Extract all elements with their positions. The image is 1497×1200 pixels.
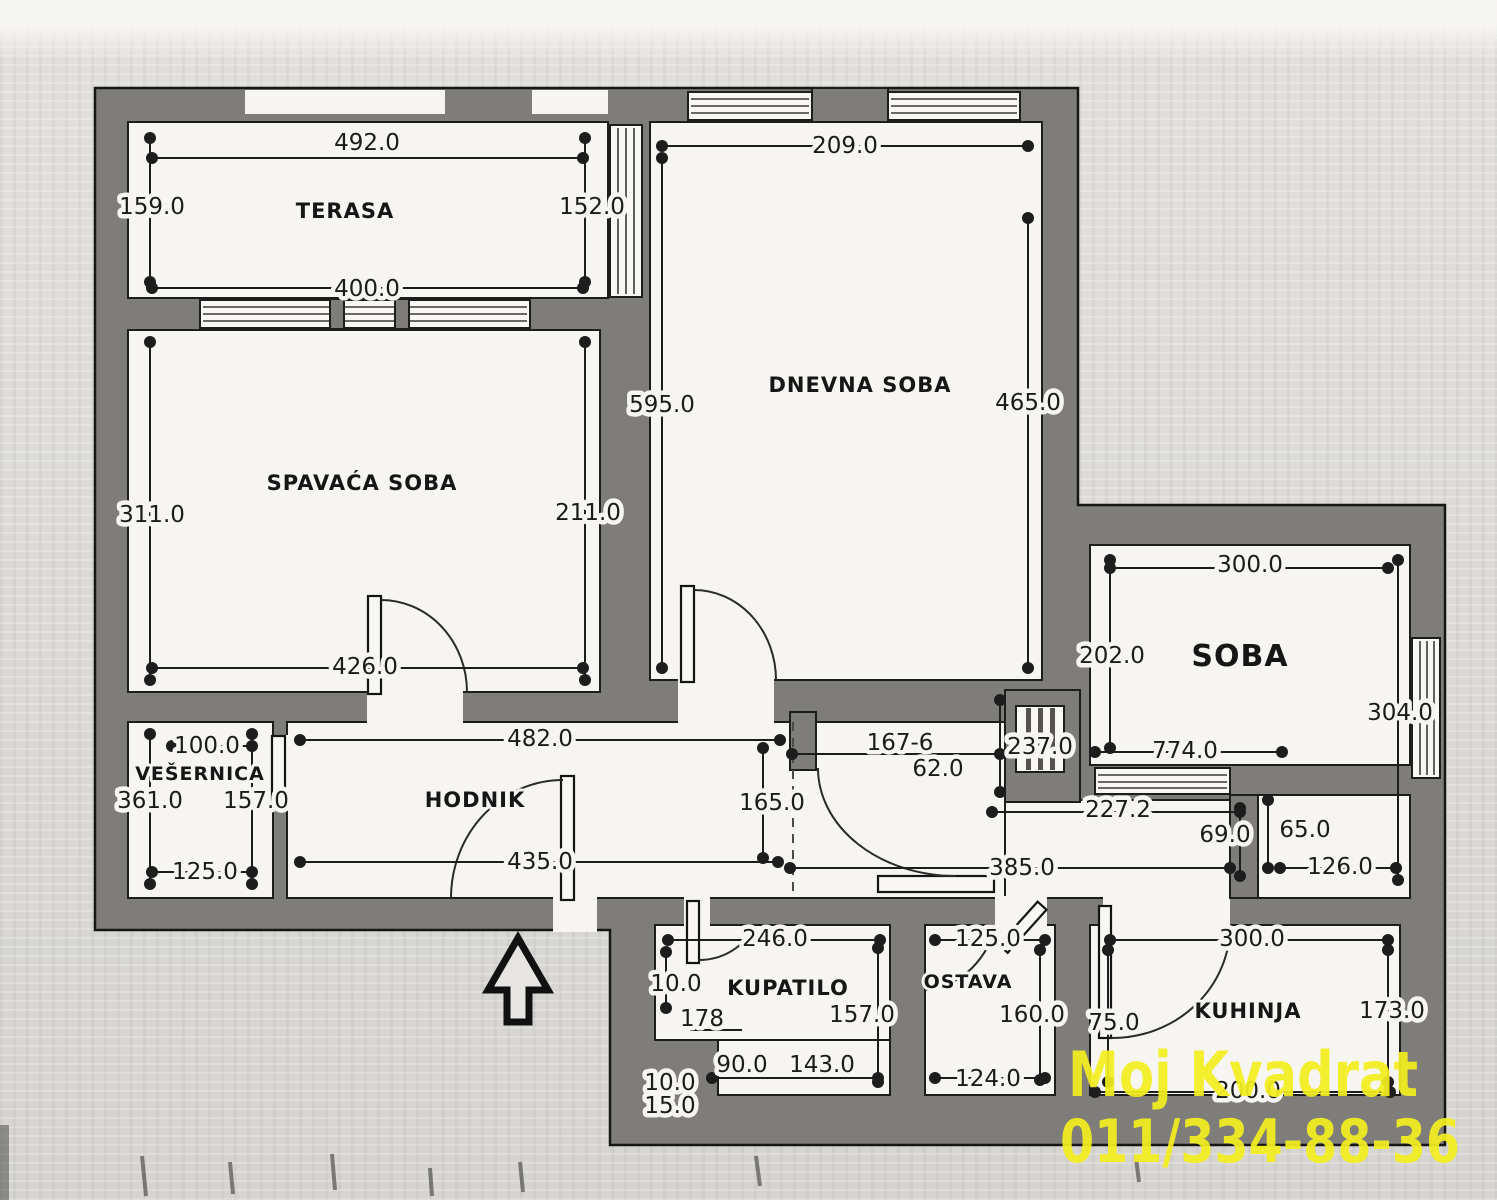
room-label-kuhinja: KUHINJA bbox=[1195, 999, 1302, 1023]
dim-soba-left: 202.0 bbox=[1079, 643, 1145, 669]
dim-soba-top: 300.0 bbox=[1217, 552, 1283, 578]
dim-kupatilo-top: 246.0 bbox=[742, 926, 808, 952]
dim-vesernica-bottom: 125.0 bbox=[172, 859, 238, 885]
floor-plan-canvas: TERASA DNEVNA SOBA SPAVAĆA SOBA SOBA VEŠ… bbox=[0, 0, 1497, 1200]
dim-hodnik-top: 482.0 bbox=[507, 726, 573, 752]
dim-hodnik-bottom: 435.0 bbox=[507, 849, 573, 875]
entry-door-opening bbox=[553, 896, 597, 932]
dim-kupatilo-right: 157.0 bbox=[829, 1002, 895, 1028]
loggia-niche-area bbox=[1258, 795, 1410, 898]
scanned-floor-plan-page: TERASA DNEVNA SOBA SPAVAĆA SOBA SOBA VEŠ… bbox=[0, 0, 1497, 1200]
dim-vesernica-left: 361.0 bbox=[117, 788, 183, 814]
terasa-parapet-opening-left bbox=[245, 90, 445, 114]
dim-ostava-top: 125.0 bbox=[955, 926, 1021, 952]
room-label-dnevna-soba: DNEVNA SOBA bbox=[769, 373, 952, 397]
dim-vesernica-right: 157.0 bbox=[223, 788, 289, 814]
dim-terasa-top: 492.0 bbox=[334, 130, 400, 156]
kuhinja-door-opening bbox=[1103, 896, 1230, 927]
room-label-vesernica: VEŠERNICA bbox=[135, 761, 265, 785]
entrance-arrow-icon bbox=[488, 938, 548, 1022]
dim-kuhinja-top: 300.0 bbox=[1219, 926, 1285, 952]
dim-dnevna-left: 595.0 bbox=[629, 392, 695, 418]
dim-hall-shaft: 237.0 bbox=[1007, 734, 1073, 760]
dim-terasa-right: 152.0 bbox=[559, 194, 625, 220]
dim-kupatilo-door: 178 bbox=[680, 1006, 724, 1032]
dim-spavaca-bottom: 426.0 bbox=[332, 654, 398, 680]
dim-spavaca-right: 211.0 bbox=[555, 500, 621, 526]
dnevna-door-leaf bbox=[681, 586, 694, 682]
dim-hodnik-right: 165.0 bbox=[739, 790, 805, 816]
soba-bottom-window bbox=[1095, 768, 1230, 794]
dim-soba-right: 304.0 bbox=[1367, 700, 1433, 726]
watermark-brand: Moj Kvadrat bbox=[1068, 1038, 1418, 1111]
kupatilo-door-leaf bbox=[687, 901, 699, 963]
dnevna-door-opening bbox=[678, 678, 774, 724]
dim-hall-bottom: 385.0 bbox=[989, 855, 1055, 881]
room-label-spavaca-soba: SPAVAĆA SOBA bbox=[267, 470, 458, 495]
dim-hall-offset: 62.0 bbox=[912, 756, 963, 782]
terasa-spavaca-window bbox=[200, 299, 530, 329]
watermark-phone: 011/334-88-36 bbox=[1060, 1107, 1460, 1177]
room-label-ostava: OSTAVA bbox=[924, 971, 1013, 993]
hall-door-leaf bbox=[878, 876, 994, 892]
room-spavaca-area bbox=[128, 330, 600, 692]
dim-ostava-bottom: 124.0 bbox=[955, 1066, 1021, 1092]
dim-hall-entry: 167-6 bbox=[867, 730, 934, 756]
terasa-parapet-opening-right bbox=[532, 90, 608, 114]
dim-dnevna-right: 465.0 bbox=[995, 390, 1061, 416]
dim-kupatilo-niche: 10.0 bbox=[650, 971, 701, 997]
room-label-terasa: TERASA bbox=[296, 199, 394, 223]
dim-hall-niche: 65.0 bbox=[1279, 817, 1330, 843]
dim-kupatilo-bottom-left: 90.0 bbox=[716, 1052, 767, 1078]
dim-hall-stub: 69.0 bbox=[1199, 822, 1250, 848]
dim-dnevna-top: 209.0 bbox=[812, 133, 878, 159]
room-label-soba: SOBA bbox=[1191, 639, 1288, 674]
entry-door-leaf bbox=[561, 776, 574, 900]
dim-kuhinja-right: 173.0 bbox=[1359, 998, 1425, 1024]
dim-terasa-left: 159.0 bbox=[119, 194, 185, 220]
dim-kuhinja-left: 75.0 bbox=[1088, 1010, 1139, 1036]
dim-terasa-bottom: 400.0 bbox=[334, 276, 400, 302]
dim-kupatilo-bottom: 143.0 bbox=[789, 1052, 855, 1078]
dim-ostava-right: 160.0 bbox=[999, 1002, 1065, 1028]
dim-niche-bottom: 126.0 bbox=[1307, 854, 1373, 880]
dim-spavaca-left: 311.0 bbox=[119, 502, 185, 528]
room-label-hodnik: HODNIK bbox=[425, 788, 526, 812]
dim-exterior-bottom: 15.0 bbox=[644, 1093, 695, 1119]
dnevna-top-windows bbox=[688, 88, 1020, 122]
dim-soba-bottom: 774.0 bbox=[1152, 738, 1218, 764]
dim-vesernica-top: 100.0 bbox=[174, 733, 240, 759]
room-dnevna-area bbox=[650, 122, 1042, 680]
dim-hall-passage: 227.2 bbox=[1085, 797, 1151, 823]
room-label-kupatilo: KUPATILO bbox=[727, 976, 849, 1000]
